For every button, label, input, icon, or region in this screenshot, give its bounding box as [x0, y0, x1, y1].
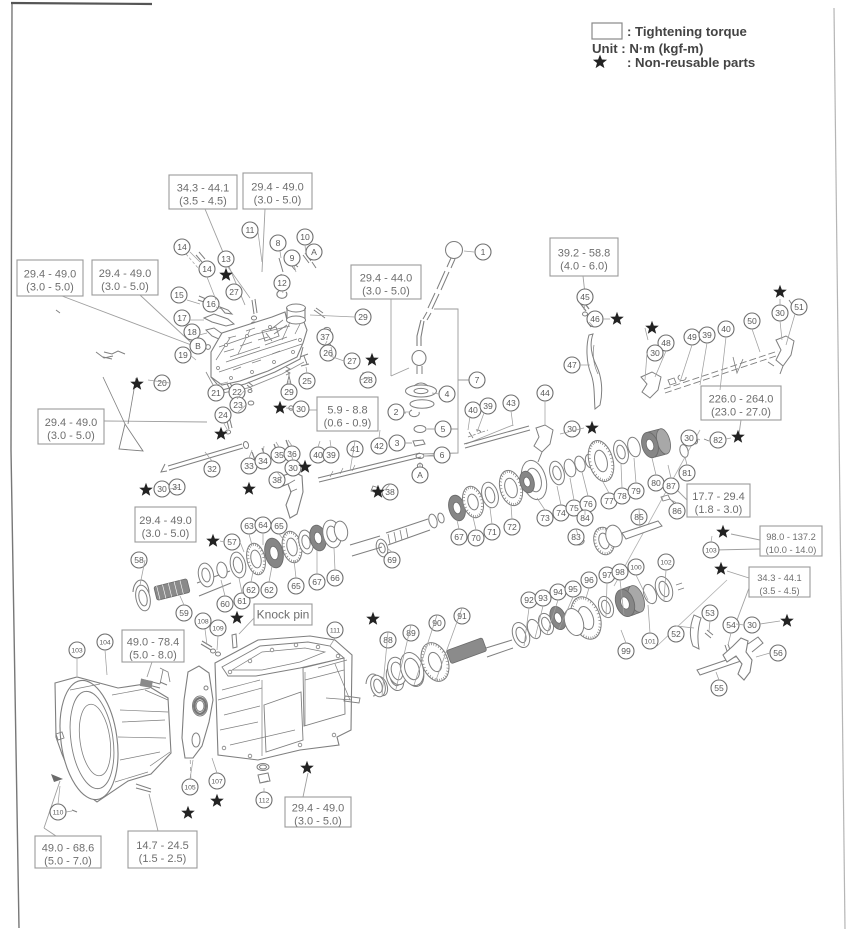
svg-text:(23.0 - 27.0): (23.0 - 27.0): [711, 406, 771, 418]
svg-text:14: 14: [177, 242, 187, 252]
svg-text:73: 73: [540, 513, 550, 523]
svg-text:59: 59: [179, 608, 189, 618]
svg-text:15: 15: [174, 290, 184, 300]
svg-text:100: 100: [630, 564, 642, 571]
svg-text:105: 105: [184, 784, 196, 791]
svg-text:29.4 - 49.0: 29.4 - 49.0: [99, 268, 152, 280]
svg-text:96: 96: [584, 575, 594, 585]
svg-text:82: 82: [713, 435, 723, 445]
svg-text:55: 55: [714, 683, 724, 693]
svg-text:65: 65: [291, 581, 301, 591]
svg-text:66: 66: [330, 573, 340, 583]
svg-text:75: 75: [569, 503, 579, 513]
svg-text:53: 53: [705, 608, 715, 618]
svg-text:30: 30: [567, 424, 577, 434]
svg-text:63: 63: [244, 521, 254, 531]
svg-text:92: 92: [524, 595, 534, 605]
svg-text:29.4 - 49.0: 29.4 - 49.0: [45, 417, 98, 429]
svg-text:40: 40: [468, 405, 478, 415]
svg-text:67: 67: [312, 577, 322, 587]
svg-text:30: 30: [288, 463, 298, 473]
svg-text:29.4 - 49.0: 29.4 - 49.0: [139, 515, 192, 527]
svg-text:35: 35: [274, 450, 284, 460]
svg-text:30: 30: [296, 404, 306, 414]
svg-text:112: 112: [259, 797, 270, 804]
svg-text:25: 25: [302, 376, 312, 386]
svg-text:29.4 - 49.0: 29.4 - 49.0: [251, 181, 304, 193]
svg-text:49.0 - 68.6: 49.0 - 68.6: [42, 842, 95, 854]
svg-text:74: 74: [556, 508, 566, 518]
svg-text:39: 39: [483, 401, 493, 411]
svg-text:30: 30: [650, 348, 660, 358]
svg-text:78: 78: [617, 491, 627, 501]
svg-text:54: 54: [726, 620, 736, 630]
svg-text:A: A: [417, 470, 423, 480]
svg-text:88: 88: [383, 635, 393, 645]
svg-text:37: 37: [320, 332, 330, 342]
svg-text:48: 48: [661, 338, 671, 348]
svg-text:19: 19: [178, 350, 188, 360]
svg-text:43: 43: [506, 398, 516, 408]
svg-text:(10.0 - 14.0): (10.0 - 14.0): [766, 545, 817, 555]
svg-text:27: 27: [229, 287, 239, 297]
svg-text:72: 72: [507, 522, 517, 532]
svg-text:50: 50: [747, 316, 757, 326]
svg-text:95: 95: [568, 584, 578, 594]
svg-text:87: 87: [666, 481, 676, 491]
svg-text:(3.0 - 5.0): (3.0 - 5.0): [362, 285, 410, 297]
svg-text:49.0 - 78.4: 49.0 - 78.4: [127, 636, 180, 648]
svg-text:34: 34: [258, 456, 268, 466]
svg-text:102: 102: [660, 559, 672, 566]
svg-text:65: 65: [274, 521, 284, 531]
svg-text:34.3 - 44.1: 34.3 - 44.1: [757, 573, 801, 583]
svg-text:226.0 - 264.0: 226.0 - 264.0: [709, 393, 774, 405]
svg-text:5.9 - 8.8: 5.9 - 8.8: [327, 404, 367, 416]
svg-text:64: 64: [258, 520, 268, 530]
svg-text:104: 104: [99, 639, 111, 646]
svg-text:69: 69: [387, 555, 397, 565]
svg-text:109: 109: [212, 625, 224, 632]
svg-text:34.3 - 44.1: 34.3 - 44.1: [177, 182, 230, 194]
svg-text:2: 2: [394, 407, 399, 417]
svg-text:29.4 - 44.0: 29.4 - 44.0: [360, 272, 413, 284]
svg-text:(3.5 - 4.5): (3.5 - 4.5): [759, 586, 799, 596]
svg-text:51: 51: [794, 302, 804, 312]
svg-text:99: 99: [621, 646, 631, 656]
svg-text:91: 91: [457, 611, 467, 621]
svg-text:97: 97: [602, 570, 612, 580]
svg-text:11: 11: [246, 225, 255, 235]
svg-text:(5.0 - 8.0): (5.0 - 8.0): [129, 649, 177, 661]
svg-text:A: A: [311, 247, 317, 257]
svg-text:5: 5: [441, 424, 446, 434]
svg-text:3: 3: [395, 438, 400, 448]
svg-text:56: 56: [773, 648, 783, 658]
svg-text:18: 18: [187, 327, 197, 337]
svg-text:41: 41: [350, 444, 360, 454]
svg-text:30: 30: [775, 308, 785, 318]
svg-text:77: 77: [604, 496, 614, 506]
svg-text:80: 80: [651, 478, 661, 488]
svg-text:71: 71: [487, 527, 497, 537]
svg-text:12: 12: [277, 278, 287, 288]
svg-text:30: 30: [684, 433, 694, 443]
svg-text:(5.0 - 7.0): (5.0 - 7.0): [44, 855, 92, 867]
svg-text:(1.5 - 2.5): (1.5 - 2.5): [139, 853, 187, 865]
svg-text:9: 9: [290, 253, 295, 263]
svg-text:57: 57: [227, 537, 237, 547]
svg-text:42: 42: [374, 441, 384, 451]
svg-text:62: 62: [246, 585, 256, 595]
svg-text:29.4 - 49.0: 29.4 - 49.0: [292, 802, 345, 814]
svg-text:(3.0 - 5.0): (3.0 - 5.0): [47, 430, 95, 442]
svg-text:30: 30: [157, 484, 167, 494]
svg-text:86: 86: [672, 506, 682, 516]
svg-text:93: 93: [538, 593, 548, 603]
svg-text:10: 10: [300, 232, 310, 242]
svg-text:(3.5 - 4.5): (3.5 - 4.5): [179, 195, 227, 207]
svg-text:108: 108: [197, 618, 209, 625]
svg-text:30: 30: [747, 620, 757, 630]
svg-text:81: 81: [682, 468, 692, 478]
svg-text:40: 40: [721, 324, 731, 334]
svg-text:29.4 - 49.0: 29.4 - 49.0: [24, 268, 77, 280]
svg-text:14.7 - 24.5: 14.7 - 24.5: [136, 840, 189, 852]
svg-text:107: 107: [211, 778, 223, 785]
svg-text:Unit : N·m (kgf-m): Unit : N·m (kgf-m): [592, 41, 703, 56]
svg-text:94: 94: [553, 587, 563, 597]
svg-text:21: 21: [211, 388, 221, 398]
svg-text:39: 39: [326, 450, 336, 460]
svg-text:31: 31: [172, 482, 182, 492]
svg-text:B: B: [195, 341, 201, 351]
svg-text:Knock pin: Knock pin: [257, 608, 310, 622]
svg-text:45: 45: [580, 292, 590, 302]
svg-text:47: 47: [567, 360, 577, 370]
svg-text:111: 111: [330, 627, 341, 634]
svg-text:79: 79: [631, 486, 641, 496]
svg-text:76: 76: [583, 499, 593, 509]
svg-text:13: 13: [221, 254, 231, 264]
svg-text:4: 4: [445, 389, 450, 399]
svg-text:1: 1: [481, 247, 486, 257]
svg-text:7: 7: [475, 375, 480, 385]
svg-text:103: 103: [705, 547, 717, 554]
svg-text:8: 8: [276, 238, 281, 248]
svg-text:(0.6 - 0.9): (0.6 - 0.9): [324, 417, 372, 429]
svg-text:29: 29: [358, 312, 368, 322]
svg-text:28: 28: [363, 375, 373, 385]
svg-text:40: 40: [313, 450, 323, 460]
svg-text:83: 83: [571, 532, 581, 542]
svg-text:62: 62: [264, 585, 274, 595]
svg-text:29: 29: [284, 387, 294, 397]
svg-text:17.7 - 29.4: 17.7 - 29.4: [692, 491, 745, 503]
svg-text:98.0 - 137.2: 98.0 - 137.2: [766, 532, 816, 542]
svg-text:70: 70: [471, 533, 481, 543]
svg-text:(1.8 - 3.0): (1.8 - 3.0): [695, 504, 743, 516]
svg-text:89: 89: [406, 628, 416, 638]
svg-text:52: 52: [671, 629, 681, 639]
svg-text:61: 61: [237, 596, 247, 606]
svg-text:(3.0 - 5.0): (3.0 - 5.0): [101, 281, 149, 293]
svg-text:6: 6: [440, 450, 445, 460]
svg-text:14: 14: [202, 264, 212, 274]
svg-text:17: 17: [177, 313, 187, 323]
svg-text:24: 24: [218, 410, 228, 420]
svg-text:: Tightening torque: : Tightening torque: [627, 24, 747, 39]
svg-text:44: 44: [540, 388, 550, 398]
svg-text:49: 49: [687, 332, 697, 342]
svg-text:46: 46: [590, 314, 600, 324]
svg-text:58: 58: [134, 555, 144, 565]
svg-text:101: 101: [644, 638, 656, 645]
svg-text:(3.0 - 5.0): (3.0 - 5.0): [142, 528, 190, 540]
svg-text:(3.0 - 5.0): (3.0 - 5.0): [294, 815, 342, 827]
svg-text:(3.0 - 5.0): (3.0 - 5.0): [26, 281, 74, 293]
svg-text:27: 27: [347, 356, 357, 366]
svg-text:110: 110: [53, 809, 64, 816]
svg-text:67: 67: [454, 532, 464, 542]
svg-text:32: 32: [207, 464, 217, 474]
svg-text:60: 60: [220, 599, 230, 609]
svg-text:103: 103: [71, 647, 83, 654]
svg-text:(3.0 - 5.0): (3.0 - 5.0): [254, 194, 302, 206]
svg-text:98: 98: [615, 567, 625, 577]
svg-text:(4.0 - 6.0): (4.0 - 6.0): [560, 260, 608, 272]
svg-text:39.2 - 58.8: 39.2 - 58.8: [558, 247, 611, 259]
svg-text:39: 39: [702, 330, 712, 340]
svg-text:16: 16: [206, 299, 216, 309]
svg-text:33: 33: [244, 461, 254, 471]
svg-text:: Non-reusable parts: : Non-reusable parts: [627, 55, 755, 70]
svg-text:23: 23: [233, 400, 243, 410]
